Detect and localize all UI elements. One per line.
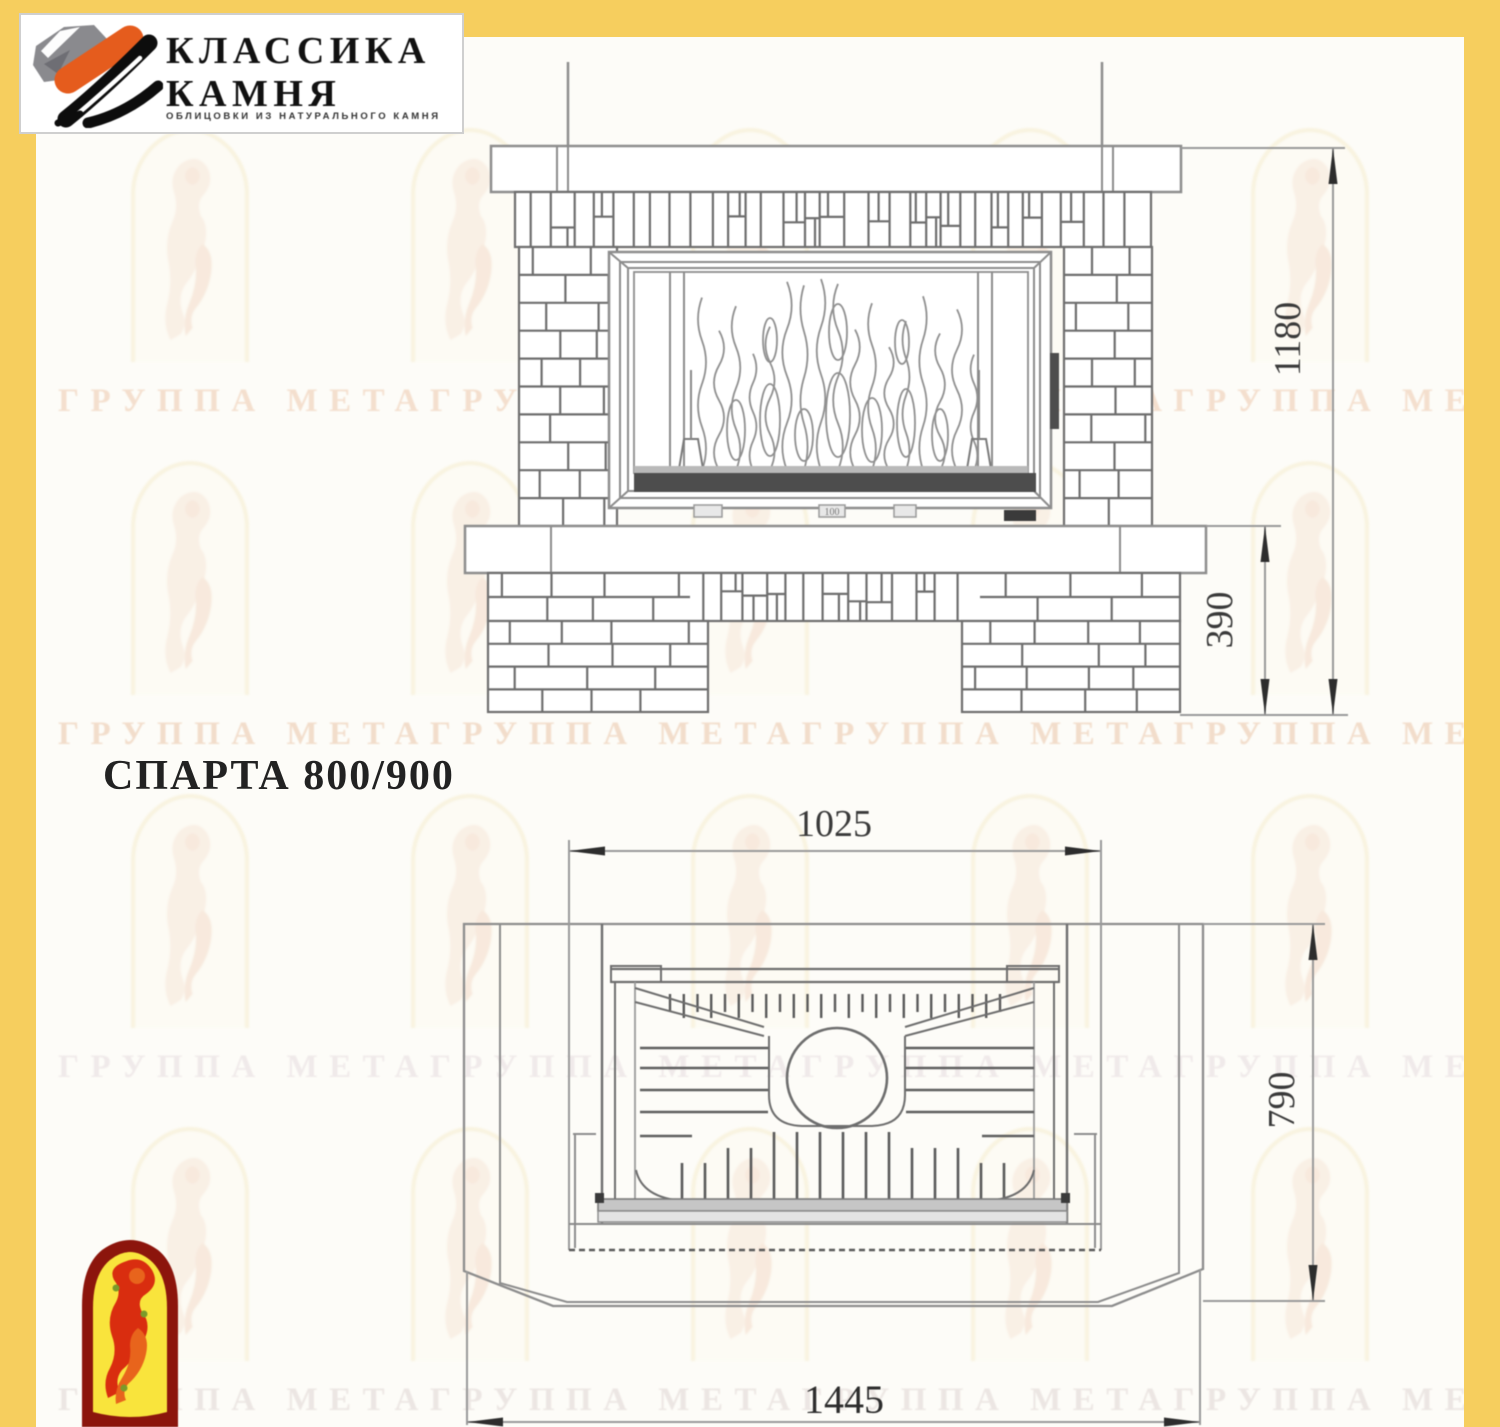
- svg-text:1025: 1025: [796, 803, 872, 845]
- svg-text:100: 100: [825, 507, 840, 518]
- svg-text:390: 390: [1199, 592, 1241, 649]
- svg-text:1445: 1445: [804, 1377, 884, 1422]
- svg-text:1180: 1180: [1267, 302, 1309, 377]
- svg-text:790: 790: [1261, 1072, 1303, 1129]
